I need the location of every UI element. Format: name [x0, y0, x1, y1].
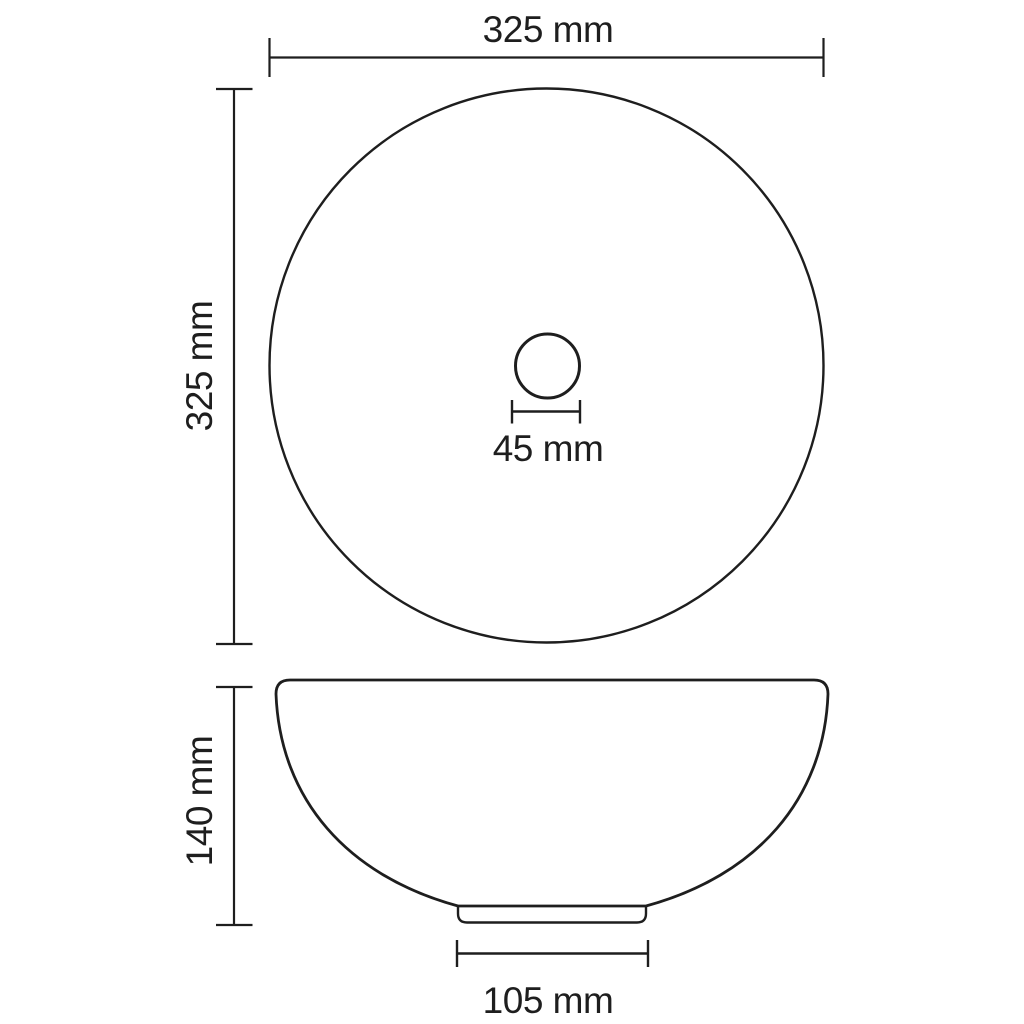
bowl-height-dimension — [216, 687, 253, 925]
top-view-basin-circle — [270, 89, 824, 643]
base-width-dimension — [457, 940, 648, 967]
side-view-bowl-outline — [276, 680, 828, 906]
side-view-base-foot — [458, 906, 646, 923]
drain-diameter-label: 45 mm — [493, 428, 604, 469]
drain-hole-circle — [516, 334, 580, 398]
base-width-label: 105 mm — [483, 980, 614, 1021]
left-height-dimension — [216, 89, 253, 644]
basin-dimension-diagram: 325 mm 325 mm 45 mm 140 mm 105 mm — [0, 0, 1024, 1024]
dimension-drawing: 325 mm 325 mm 45 mm 140 mm 105 mm — [0, 0, 1024, 1024]
top-width-label: 325 mm — [483, 9, 614, 50]
drain-dimension — [512, 400, 580, 424]
bowl-height-label: 140 mm — [179, 736, 220, 867]
left-height-label: 325 mm — [179, 301, 220, 432]
